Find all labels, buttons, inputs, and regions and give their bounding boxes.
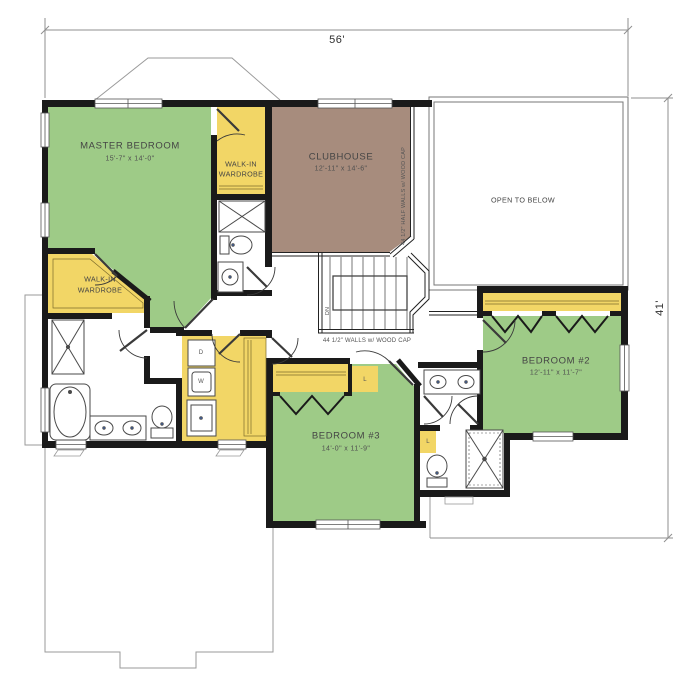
bedroom2-size: 12'-11" x 11'-7" bbox=[530, 370, 582, 377]
open-to-below-outline bbox=[429, 97, 628, 290]
wardrobe-right-area bbox=[217, 107, 265, 194]
floor-plan: 56' 41' MASTER BEDROOM 15'-7" x 14'-0" W… bbox=[0, 0, 700, 700]
ensuite-sink bbox=[218, 262, 243, 292]
ensuite-shower bbox=[219, 201, 265, 232]
bedroom2-label: BEDROOM #2 bbox=[522, 356, 590, 367]
master-shower bbox=[52, 320, 84, 374]
bathtub bbox=[50, 384, 90, 440]
master-vanity bbox=[90, 416, 146, 440]
wardrobe-right-label-1: WALK-IN bbox=[225, 160, 257, 169]
linen-label-2: L bbox=[426, 439, 430, 445]
window-bath-bottom bbox=[56, 440, 86, 449]
wardrobe-left-label-1: WALK-IN bbox=[84, 275, 116, 284]
shared-toilet bbox=[427, 455, 447, 487]
stairs-down-label: DN bbox=[325, 307, 331, 315]
door-shared-bath-2 bbox=[450, 396, 478, 424]
linen-label-1: L bbox=[363, 377, 367, 383]
ensuite-toilet bbox=[220, 236, 252, 254]
shared-vanity bbox=[424, 370, 480, 394]
window-master-top bbox=[95, 99, 162, 108]
bedroom3-size: 14'-0" x 11'-9" bbox=[322, 446, 371, 453]
window-bedroom2-bottom bbox=[533, 432, 573, 441]
dryer-label: D bbox=[199, 350, 204, 356]
walls-note: 44 1/2" WALLS w/ WOOD CAP bbox=[323, 338, 411, 344]
open-to-below-label: OPEN TO BELOW bbox=[491, 196, 555, 205]
master-toilet bbox=[151, 406, 173, 438]
master-bedroom-size: 15'-7" x 14'-0" bbox=[105, 156, 154, 163]
window-bath-left bbox=[41, 388, 49, 432]
window-bedroom2-right bbox=[620, 345, 629, 391]
floor-plan-drawing bbox=[0, 0, 700, 700]
washer-label: W bbox=[198, 379, 204, 385]
wardrobe-left-label-2: WARDROBE bbox=[78, 286, 122, 295]
staircase bbox=[330, 257, 407, 329]
clubhouse-label: CLUBHOUSE bbox=[309, 152, 374, 163]
shared-shower bbox=[466, 430, 503, 488]
width-dimension-label: 56' bbox=[329, 34, 345, 46]
door-shared-bath-1 bbox=[424, 396, 452, 424]
laundry-sink bbox=[187, 400, 216, 436]
wardrobe-right-label-2: WARDROBE bbox=[219, 170, 263, 179]
master-bedroom-label: MASTER BEDROOM bbox=[80, 141, 180, 152]
door-master-bath bbox=[119, 330, 147, 358]
window-master-left-2 bbox=[41, 203, 49, 237]
window-bedroom3-bottom bbox=[316, 520, 380, 529]
clubhouse-area bbox=[272, 107, 410, 253]
bedroom3-closet-area bbox=[272, 364, 348, 392]
half-walls-note: 44 1/2" HALF WALLS w/ WOOD CAP bbox=[401, 147, 407, 245]
clubhouse-size: 12'-11" x 14'-6" bbox=[315, 166, 368, 173]
height-dimension-label: 41' bbox=[654, 300, 666, 316]
window-master-left-1 bbox=[41, 113, 49, 147]
window-laundry-bottom bbox=[218, 440, 246, 449]
lower-roof-outline bbox=[45, 448, 273, 668]
bedroom2-closet-area bbox=[483, 293, 621, 311]
window-clubhouse-top bbox=[318, 99, 392, 108]
bedroom3-label: BEDROOM #3 bbox=[312, 431, 380, 442]
dormer-roof-outline bbox=[95, 58, 280, 100]
